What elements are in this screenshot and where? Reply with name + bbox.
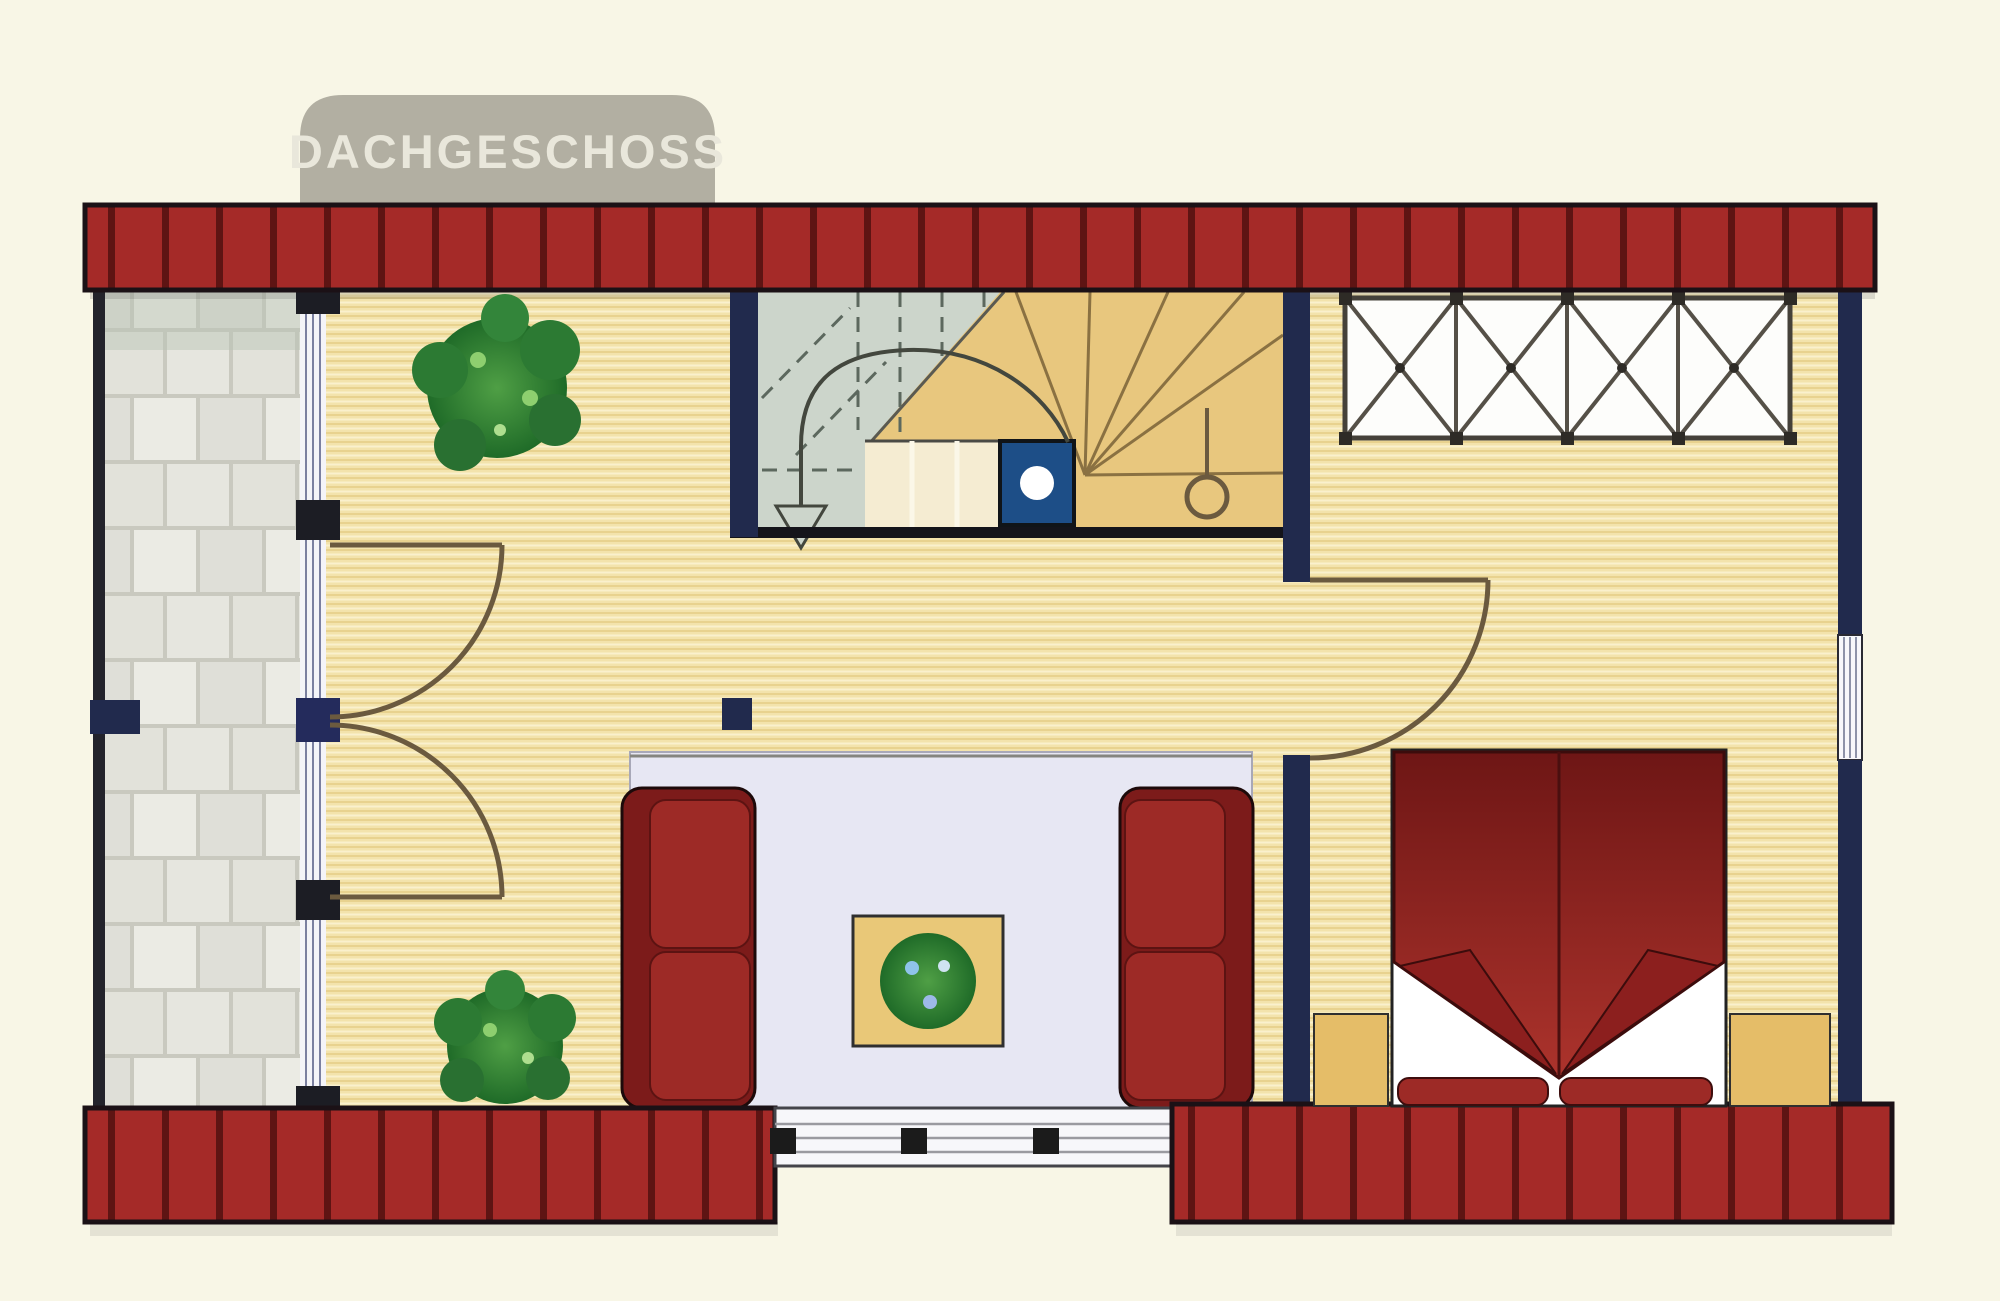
sofa-cushion bbox=[1125, 800, 1225, 948]
door-jamb-block bbox=[296, 880, 340, 920]
center-door-post bbox=[296, 698, 340, 742]
plant-foliage bbox=[434, 419, 486, 471]
pillow bbox=[1560, 1078, 1712, 1105]
staircase bbox=[730, 290, 1310, 548]
bottom-wall-right bbox=[1172, 1104, 1892, 1222]
sofa-cushion bbox=[650, 952, 750, 1100]
bedroom-wall-lower bbox=[1283, 755, 1310, 1108]
floor-title-badge: DACHGESCHOSS bbox=[289, 95, 727, 210]
top-wall bbox=[85, 205, 1875, 290]
plant-foliage bbox=[485, 970, 525, 1010]
table-plant bbox=[880, 933, 976, 1029]
right-outer-wall bbox=[1838, 290, 1862, 1108]
mullion-block bbox=[296, 1086, 340, 1108]
stair-wall-left bbox=[730, 290, 758, 537]
sofa-cushion bbox=[650, 800, 750, 948]
wall-shadow bbox=[90, 1222, 778, 1236]
pillow bbox=[1398, 1078, 1548, 1105]
sofa-right bbox=[1120, 788, 1253, 1108]
window-mullion bbox=[770, 1128, 796, 1154]
chimney-flue bbox=[1020, 466, 1054, 500]
bedroom-wall-upper bbox=[1283, 290, 1310, 582]
plant-highlight bbox=[494, 424, 506, 436]
chimney bbox=[1000, 441, 1074, 525]
plant-flower bbox=[938, 960, 950, 972]
floor-plan-page: DACHGESCHOSS bbox=[0, 0, 2000, 1301]
bottom-wall-left bbox=[85, 1108, 775, 1222]
bottom-window bbox=[770, 1108, 1172, 1166]
right-wall-lower bbox=[1838, 760, 1862, 1108]
right-wall-upper bbox=[1838, 290, 1862, 635]
column-post bbox=[722, 698, 752, 730]
plant-highlight bbox=[522, 1052, 534, 1064]
door-jamb-block bbox=[296, 500, 340, 540]
wall-shadow bbox=[1176, 1222, 1892, 1236]
plant-foliage bbox=[434, 998, 482, 1046]
floor-title: DACHGESCHOSS bbox=[289, 125, 727, 178]
plant-foliage bbox=[440, 1058, 484, 1102]
double-bed bbox=[1392, 750, 1726, 1106]
window-mullion bbox=[1033, 1128, 1059, 1154]
sofa-cushion bbox=[1125, 952, 1225, 1100]
plant-foliage bbox=[520, 320, 580, 380]
nightstand-left bbox=[1314, 1014, 1388, 1106]
plant-flower bbox=[923, 995, 937, 1009]
sofa-left bbox=[622, 788, 755, 1108]
nightstand-right bbox=[1730, 1014, 1830, 1106]
mullion-block bbox=[296, 290, 340, 314]
plant-highlight bbox=[483, 1023, 497, 1037]
storage-x-brace bbox=[1339, 292, 1797, 445]
seating-area bbox=[622, 752, 1253, 1112]
plant-flower bbox=[905, 961, 919, 975]
plant-foliage bbox=[412, 342, 468, 398]
window-mullion bbox=[901, 1128, 927, 1154]
floor-plan-drawing: DACHGESCHOSS bbox=[0, 0, 2000, 1301]
plant-highlight bbox=[470, 352, 486, 368]
winder-step-line bbox=[1085, 473, 1283, 475]
plant-foliage bbox=[526, 1056, 570, 1100]
terrace-left-edge bbox=[93, 290, 105, 1108]
plant-foliage bbox=[528, 994, 576, 1042]
terrace-stone-floor bbox=[105, 290, 300, 1108]
plant-highlight bbox=[522, 390, 538, 406]
coffee-table bbox=[853, 916, 1003, 1046]
plant-foliage bbox=[481, 294, 529, 342]
stair-bottom-edge bbox=[730, 527, 1310, 538]
terrace-wall-block bbox=[90, 700, 140, 734]
